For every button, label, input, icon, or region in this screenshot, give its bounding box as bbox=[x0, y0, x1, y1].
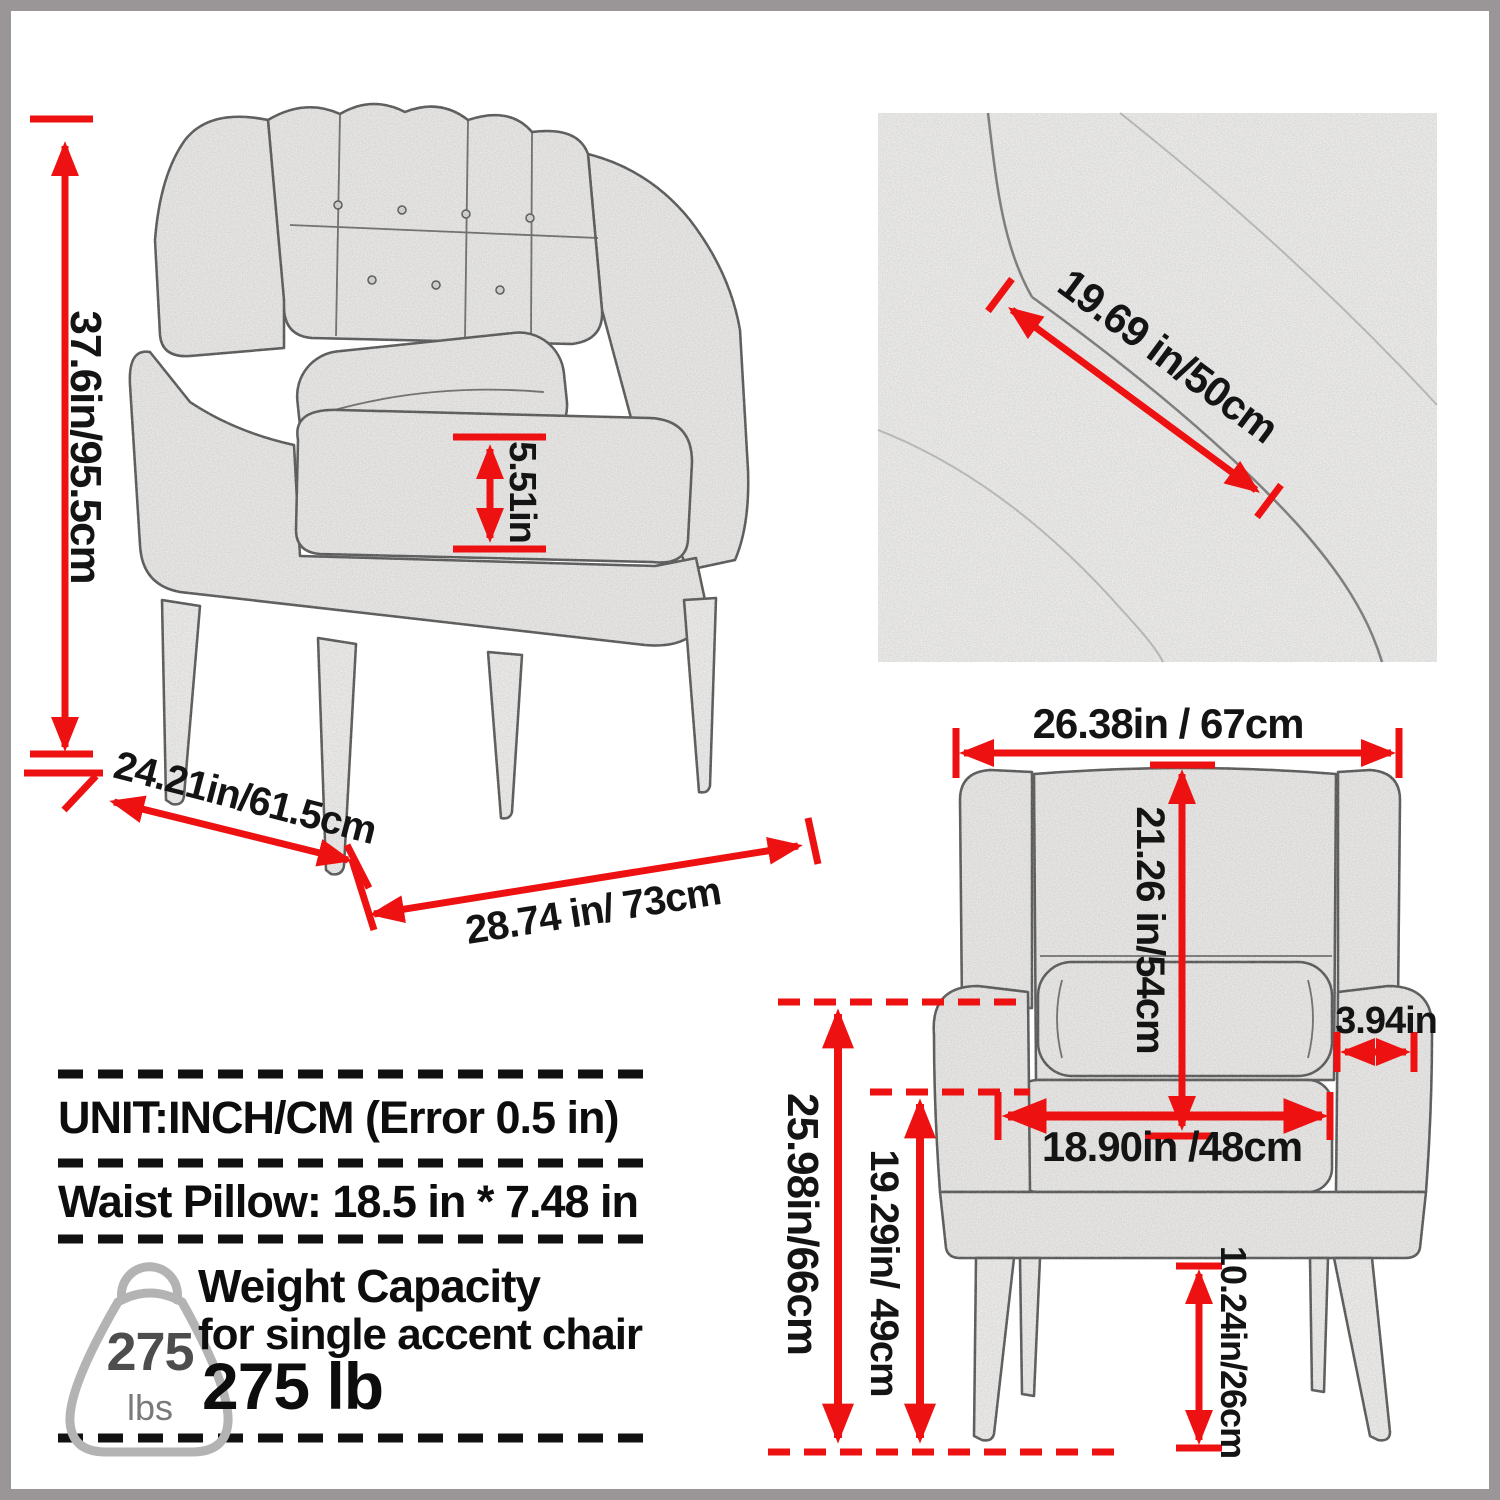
weight-capacity-value: 275 lb bbox=[202, 1352, 383, 1421]
front-back-height-dimension-label: 21.26 in/54cm bbox=[1130, 806, 1170, 1053]
weight-badge-value: 275 bbox=[106, 1321, 193, 1383]
front-seat-front-height-dimension-label: 19.29in/ 49cm bbox=[864, 1149, 904, 1396]
side-view-sketch bbox=[130, 104, 748, 874]
front-armrest-width-dimension-label: 3.94in bbox=[1335, 1002, 1437, 1040]
front-leg-height-dimension-label: 10.24in/26cm bbox=[1215, 1246, 1251, 1458]
weight-badge-unit: lbs bbox=[127, 1387, 173, 1429]
side-height-dimension-label: 37.6in/95.5cm bbox=[63, 310, 107, 583]
unit-note: UNIT:INCH/CM (Error 0.5 in) bbox=[58, 1094, 619, 1141]
side-arm-cushion-dimension-label: 5.51in bbox=[503, 441, 541, 543]
front-arm-top-height-dimension-label: 25.98in/66cm bbox=[780, 1093, 824, 1355]
waist-pillow-note: Waist Pillow: 18.5 in * 7.48 in bbox=[58, 1178, 638, 1225]
weight-capacity-title: Weight Capacity bbox=[198, 1262, 540, 1310]
closeup-sketch bbox=[878, 113, 1437, 662]
front-seat-width-dimension-label: 18.90in /48cm bbox=[1042, 1126, 1302, 1168]
dimension-diagram: 37.6in/95.5cm 5.51in 24.21in/61.5cm 28.7… bbox=[0, 0, 1500, 1500]
front-overall-width-dimension-label: 26.38in / 67cm bbox=[1033, 703, 1304, 745]
